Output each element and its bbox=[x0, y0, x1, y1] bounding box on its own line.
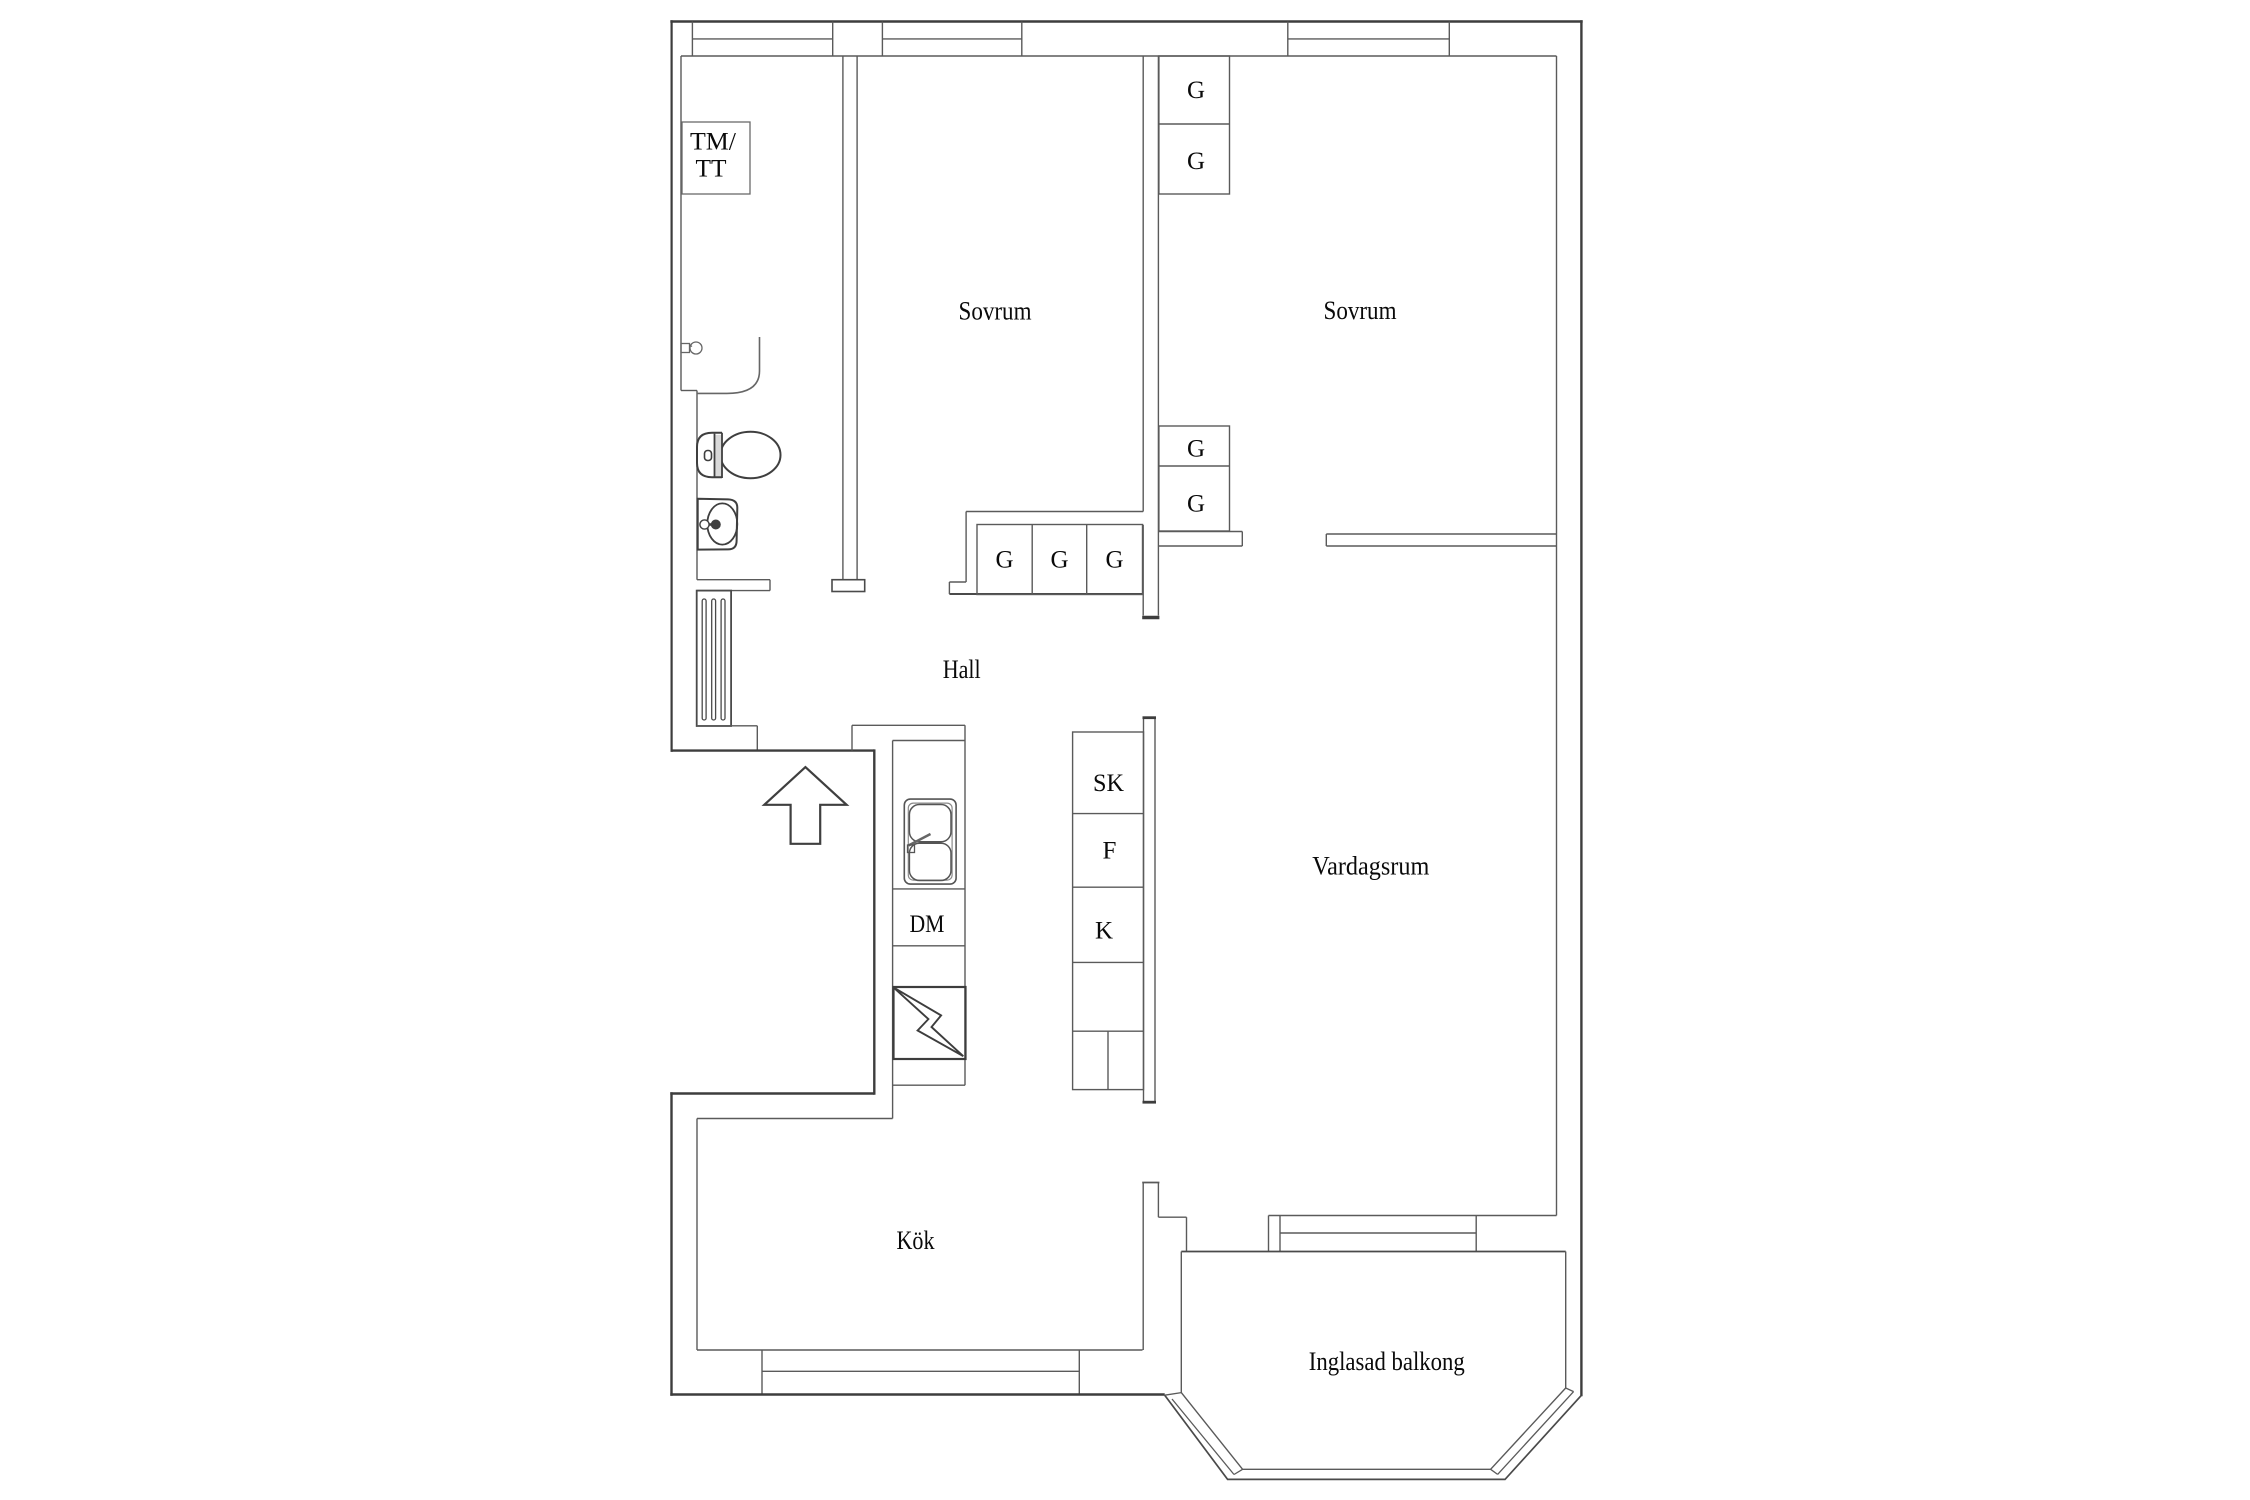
svg-text:DM: DM bbox=[910, 911, 945, 938]
svg-text:TT: TT bbox=[696, 156, 727, 183]
svg-text:Hall: Hall bbox=[943, 655, 981, 684]
svg-text:Sovrum: Sovrum bbox=[959, 297, 1032, 326]
svg-text:G: G bbox=[1187, 491, 1205, 518]
svg-text:Sovrum: Sovrum bbox=[1324, 296, 1397, 325]
svg-text:TM/: TM/ bbox=[690, 129, 736, 156]
svg-text:F: F bbox=[1103, 838, 1117, 865]
svg-text:SK: SK bbox=[1093, 770, 1124, 797]
svg-text:Inglasad balkong: Inglasad balkong bbox=[1309, 1347, 1465, 1376]
svg-text:G: G bbox=[1050, 547, 1068, 574]
svg-text:K: K bbox=[1095, 918, 1113, 945]
svg-text:G: G bbox=[1187, 77, 1205, 104]
svg-text:Vardagsrum: Vardagsrum bbox=[1312, 852, 1429, 881]
svg-text:G: G bbox=[1187, 148, 1205, 175]
svg-text:G: G bbox=[995, 547, 1013, 574]
svg-text:G: G bbox=[1187, 436, 1205, 463]
svg-text:G: G bbox=[1105, 547, 1123, 574]
svg-text:Kök: Kök bbox=[897, 1226, 935, 1255]
